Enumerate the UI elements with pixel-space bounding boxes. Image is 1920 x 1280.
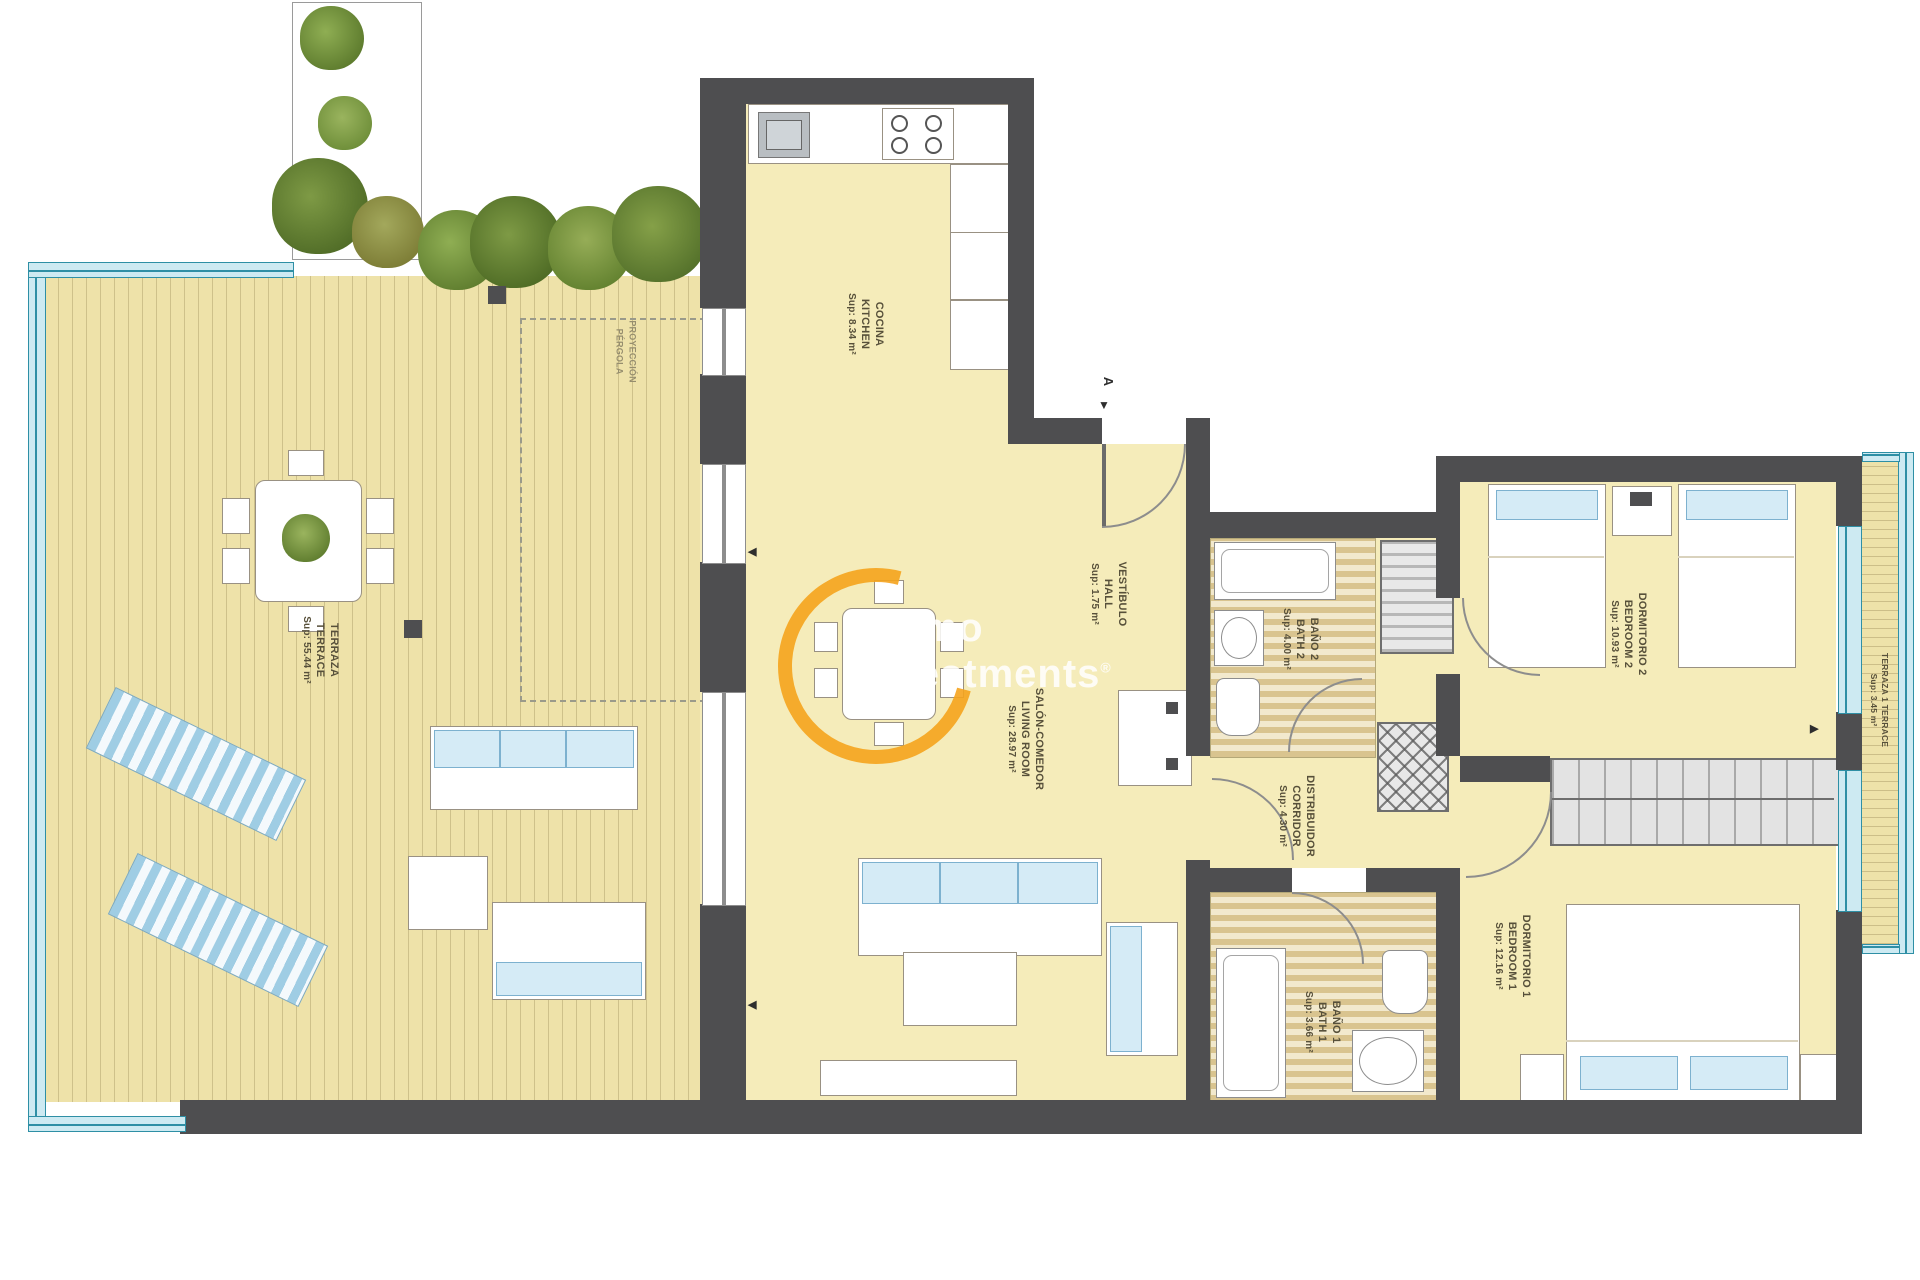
wall-bedroom2-bottom-stub [1460,756,1550,782]
bedroom1-window [1838,770,1862,912]
bath2-sink [1214,610,1264,666]
terrace-slider-door-2 [702,692,746,906]
terrace-sofa-cushions [496,962,642,996]
terrace-chair [222,498,250,534]
living-sofa-cushions [862,862,1098,904]
bedroom2-bed-blanket-line [1488,556,1604,558]
bedroom1-bed-pillow [1690,1056,1788,1090]
wall-left-lower [700,904,746,1110]
terrace-sofa-cushions [434,730,634,768]
bath1-sink-basin [1359,1037,1417,1085]
bedroom2-bed-blanket-line [1678,556,1794,558]
terrace-chair [366,498,394,534]
bedroom2-bed-pillow [1496,490,1598,520]
bedroom1-bed-blanket-line [1566,1040,1798,1042]
wall-right-top [1836,482,1862,526]
entrance-door-leaf [1102,444,1106,526]
hob-burner [891,137,908,154]
label-bedroom2: DORMITORIO 2 BEDROOM 2 Sup: 10.93 m² [1608,554,1648,714]
wall-corridor-bedroom2-a [1436,482,1460,598]
section-marker-a: A [1101,377,1116,386]
label-hall-es: VESTÍBULO [1114,519,1128,669]
living-coffee-table [903,952,1017,1026]
label-bedroom2-en: BEDROOM 2 [1621,554,1635,714]
bath1-tub-inner [1223,955,1279,1091]
label-kitchen: COCINA KITCHEN Sup: 8.34 m² [845,244,885,404]
label-bath2-en: BATH 2 [1293,584,1307,694]
cupboard-handle [1166,702,1178,714]
plant [300,6,364,70]
wardrobe [1550,758,1840,846]
hob-burner [891,115,908,132]
bedroom1-nightstand [1800,1054,1838,1102]
label-kitchen-area: Sup: 8.34 m² [845,244,858,404]
bedroom2-window [1838,526,1862,714]
label-bedroom1-es: DORMITORIO 1 [1518,876,1532,1036]
bath2-sink-basin [1221,617,1257,659]
hob-burner [925,115,942,132]
tv-sideboard [820,1060,1017,1096]
watermark-reg: ® [1100,660,1111,676]
label-terrace1: TERRAZA 1 TERRACE Sup: 3.45 m² [1868,610,1890,790]
wall-right-bottom [1836,910,1862,1134]
label-kitchen-en: KITCHEN [858,244,872,404]
label-kitchen-es: COCINA [871,244,885,404]
terrace-chair [222,548,250,584]
pergola-note-line2: PÉRGOLA [613,292,626,412]
bath1-sink [1352,1030,1424,1092]
label-hall: VESTÍBULO HALL Sup: 1.75 m² [1088,519,1128,669]
terrace-coffee-table [408,856,488,930]
bath1-tub [1216,948,1286,1098]
wall-hall-top [1008,418,1102,444]
arrow-marker: ◀ [748,545,756,558]
label-bath2-area: Sup: 4.00 m² [1280,584,1293,694]
hob-burner [925,137,942,154]
label-bath1: BAÑO 1 BATH 1 Sup: 3.66 m² [1302,967,1342,1077]
exterior-notch [1034,78,1210,418]
label-corridor: DISTRIBUIDOR CORRIDOR Sup: 4.30 m² [1276,736,1316,896]
terrace1-glass [1898,452,1914,954]
left-window [702,308,746,376]
floor-plan: PROYECCIÓN PÉRGOLA [0,0,1920,1280]
terrace-chair [366,548,394,584]
label-terrace1-name: TERRAZA 1 TERRACE [1879,610,1890,790]
kitchen-hob [882,108,954,160]
kitchen-fridge [950,300,1010,370]
label-terrace-area: Sup: 55.44 m² [300,570,313,730]
bedroom2-nightstand-item [1630,492,1652,506]
label-bedroom1-en: BEDROOM 1 [1505,876,1519,1036]
wall-bedroom2-top [1436,456,1862,482]
label-bedroom2-es: DORMITORIO 2 [1634,554,1648,714]
terrace-chair [288,450,324,476]
wall-bedroom1-left [1436,868,1460,1134]
terrace-spotlight [488,286,506,304]
label-bath2-es: BAÑO 2 [1306,584,1320,694]
label-bath1-en: BATH 1 [1315,967,1329,1077]
watermark-line1: inmo [884,606,984,651]
wall-kitchen-right [1008,78,1034,418]
terrace1-glass-bottom [1862,944,1900,954]
watermark-line2: investments® [856,652,1112,697]
label-bedroom1-area: Sup: 12.16 m² [1492,876,1505,1036]
wardrobe-rail [1552,798,1834,800]
bedroom2-bed-pillow [1686,490,1788,520]
plant [318,96,372,150]
wall-left-upper [700,78,746,308]
label-terrace: TERRAZA TERRACE Sup: 55.44 m² [300,570,340,730]
kitchen-sink [758,112,810,158]
label-corridor-en: CORRIDOR [1289,736,1303,896]
terrace-table-plant [282,514,330,562]
plant [612,186,708,282]
terrace-balustrade-top [28,262,294,278]
storage-cupboard [1118,690,1192,786]
section-marker-arrow: ▼ [1098,398,1110,412]
label-terrace-en: TERRACE [313,570,327,730]
terrace-spotlight [404,620,422,638]
label-hall-en: HALL [1101,519,1115,669]
wall-wing-left-lower [1186,860,1210,1100]
plant [352,196,424,268]
label-bath1-area: Sup: 3.66 m² [1302,967,1315,1077]
cupboard-handle [1166,758,1178,770]
wall-kitchen-top [700,78,1034,104]
label-hall-area: Sup: 1.75 m² [1088,519,1101,669]
wall-wing-left-upper [1186,418,1210,756]
kitchen-sink-basin [766,120,802,150]
label-terrace-es: TERRAZA [326,570,340,730]
living-armchair-cushion [1110,926,1142,1052]
bath1-toilet [1382,950,1428,1014]
wall-bottom [180,1100,1836,1134]
label-bath1-es: BAÑO 1 [1328,967,1342,1077]
terrace1-glass-top [1862,452,1900,462]
wall-left-2 [700,374,746,464]
bath2-toilet [1216,678,1260,736]
bedroom1-nightstand [1520,1054,1564,1102]
kitchen-cabinets [950,164,1010,300]
label-corridor-es: DISTRIBUIDOR [1302,736,1316,896]
pergola-note: PROYECCIÓN PÉRGOLA [613,292,638,412]
terrace-balustrade-left [28,262,46,1132]
wall-corridor-bedroom2-b [1436,674,1460,756]
bedroom1-bed-pillow [1580,1056,1678,1090]
label-terrace1-area: Sup: 3.45 m² [1868,610,1879,790]
wall-right-mid [1836,712,1862,770]
wall-bath2-top [1210,512,1460,538]
watermark-line2-text: investments [856,652,1100,696]
terrace-balustrade-bottom [28,1116,186,1132]
arrow-marker: ▶ [1810,722,1818,735]
label-bath2: BAÑO 2 BATH 2 Sup: 4.00 m² [1280,584,1320,694]
entrance-gap [1102,418,1186,444]
label-bedroom1: DORMITORIO 1 BEDROOM 1 Sup: 12.16 m² [1492,876,1532,1036]
label-bedroom2-area: Sup: 10.93 m² [1608,554,1621,714]
wall-left-3 [700,562,746,692]
arrow-marker: ◀ [748,998,756,1011]
label-corridor-area: Sup: 4.30 m² [1276,736,1289,896]
terrace-slider-door-1 [702,464,746,564]
pergola-note-line1: PROYECCIÓN [626,292,639,412]
